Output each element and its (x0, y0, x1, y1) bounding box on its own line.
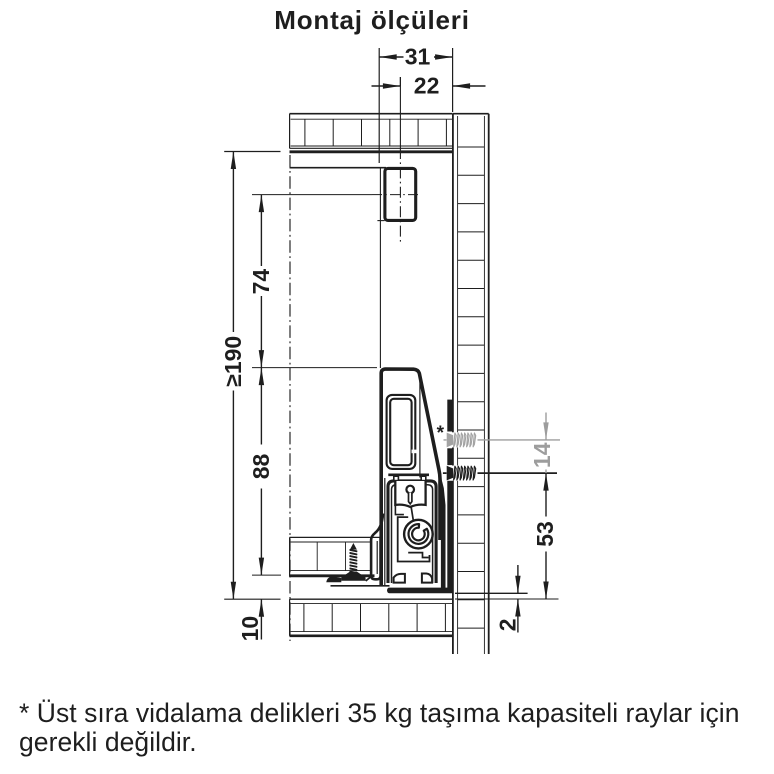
svg-text:≥190: ≥190 (220, 336, 246, 387)
svg-text:88: 88 (248, 454, 274, 480)
svg-text:*: * (437, 423, 445, 444)
svg-text:2: 2 (494, 618, 520, 631)
svg-text:74: 74 (248, 269, 274, 295)
svg-text:10: 10 (237, 616, 263, 642)
svg-text:14: 14 (529, 442, 555, 468)
svg-text:53: 53 (532, 521, 558, 547)
svg-text:22: 22 (414, 73, 440, 99)
svg-text:31: 31 (405, 44, 431, 70)
